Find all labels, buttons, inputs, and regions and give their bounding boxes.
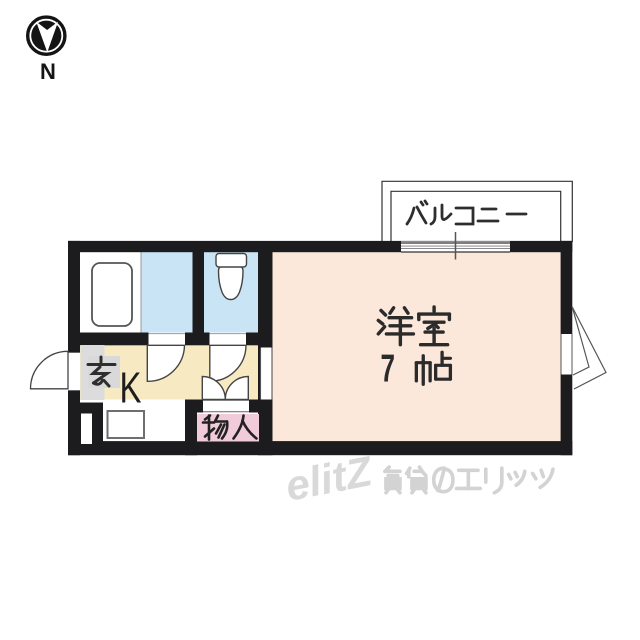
svg-text:N: N	[40, 59, 56, 84]
svg-text:K: K	[120, 364, 142, 413]
svg-text:7: 7	[381, 348, 396, 391]
